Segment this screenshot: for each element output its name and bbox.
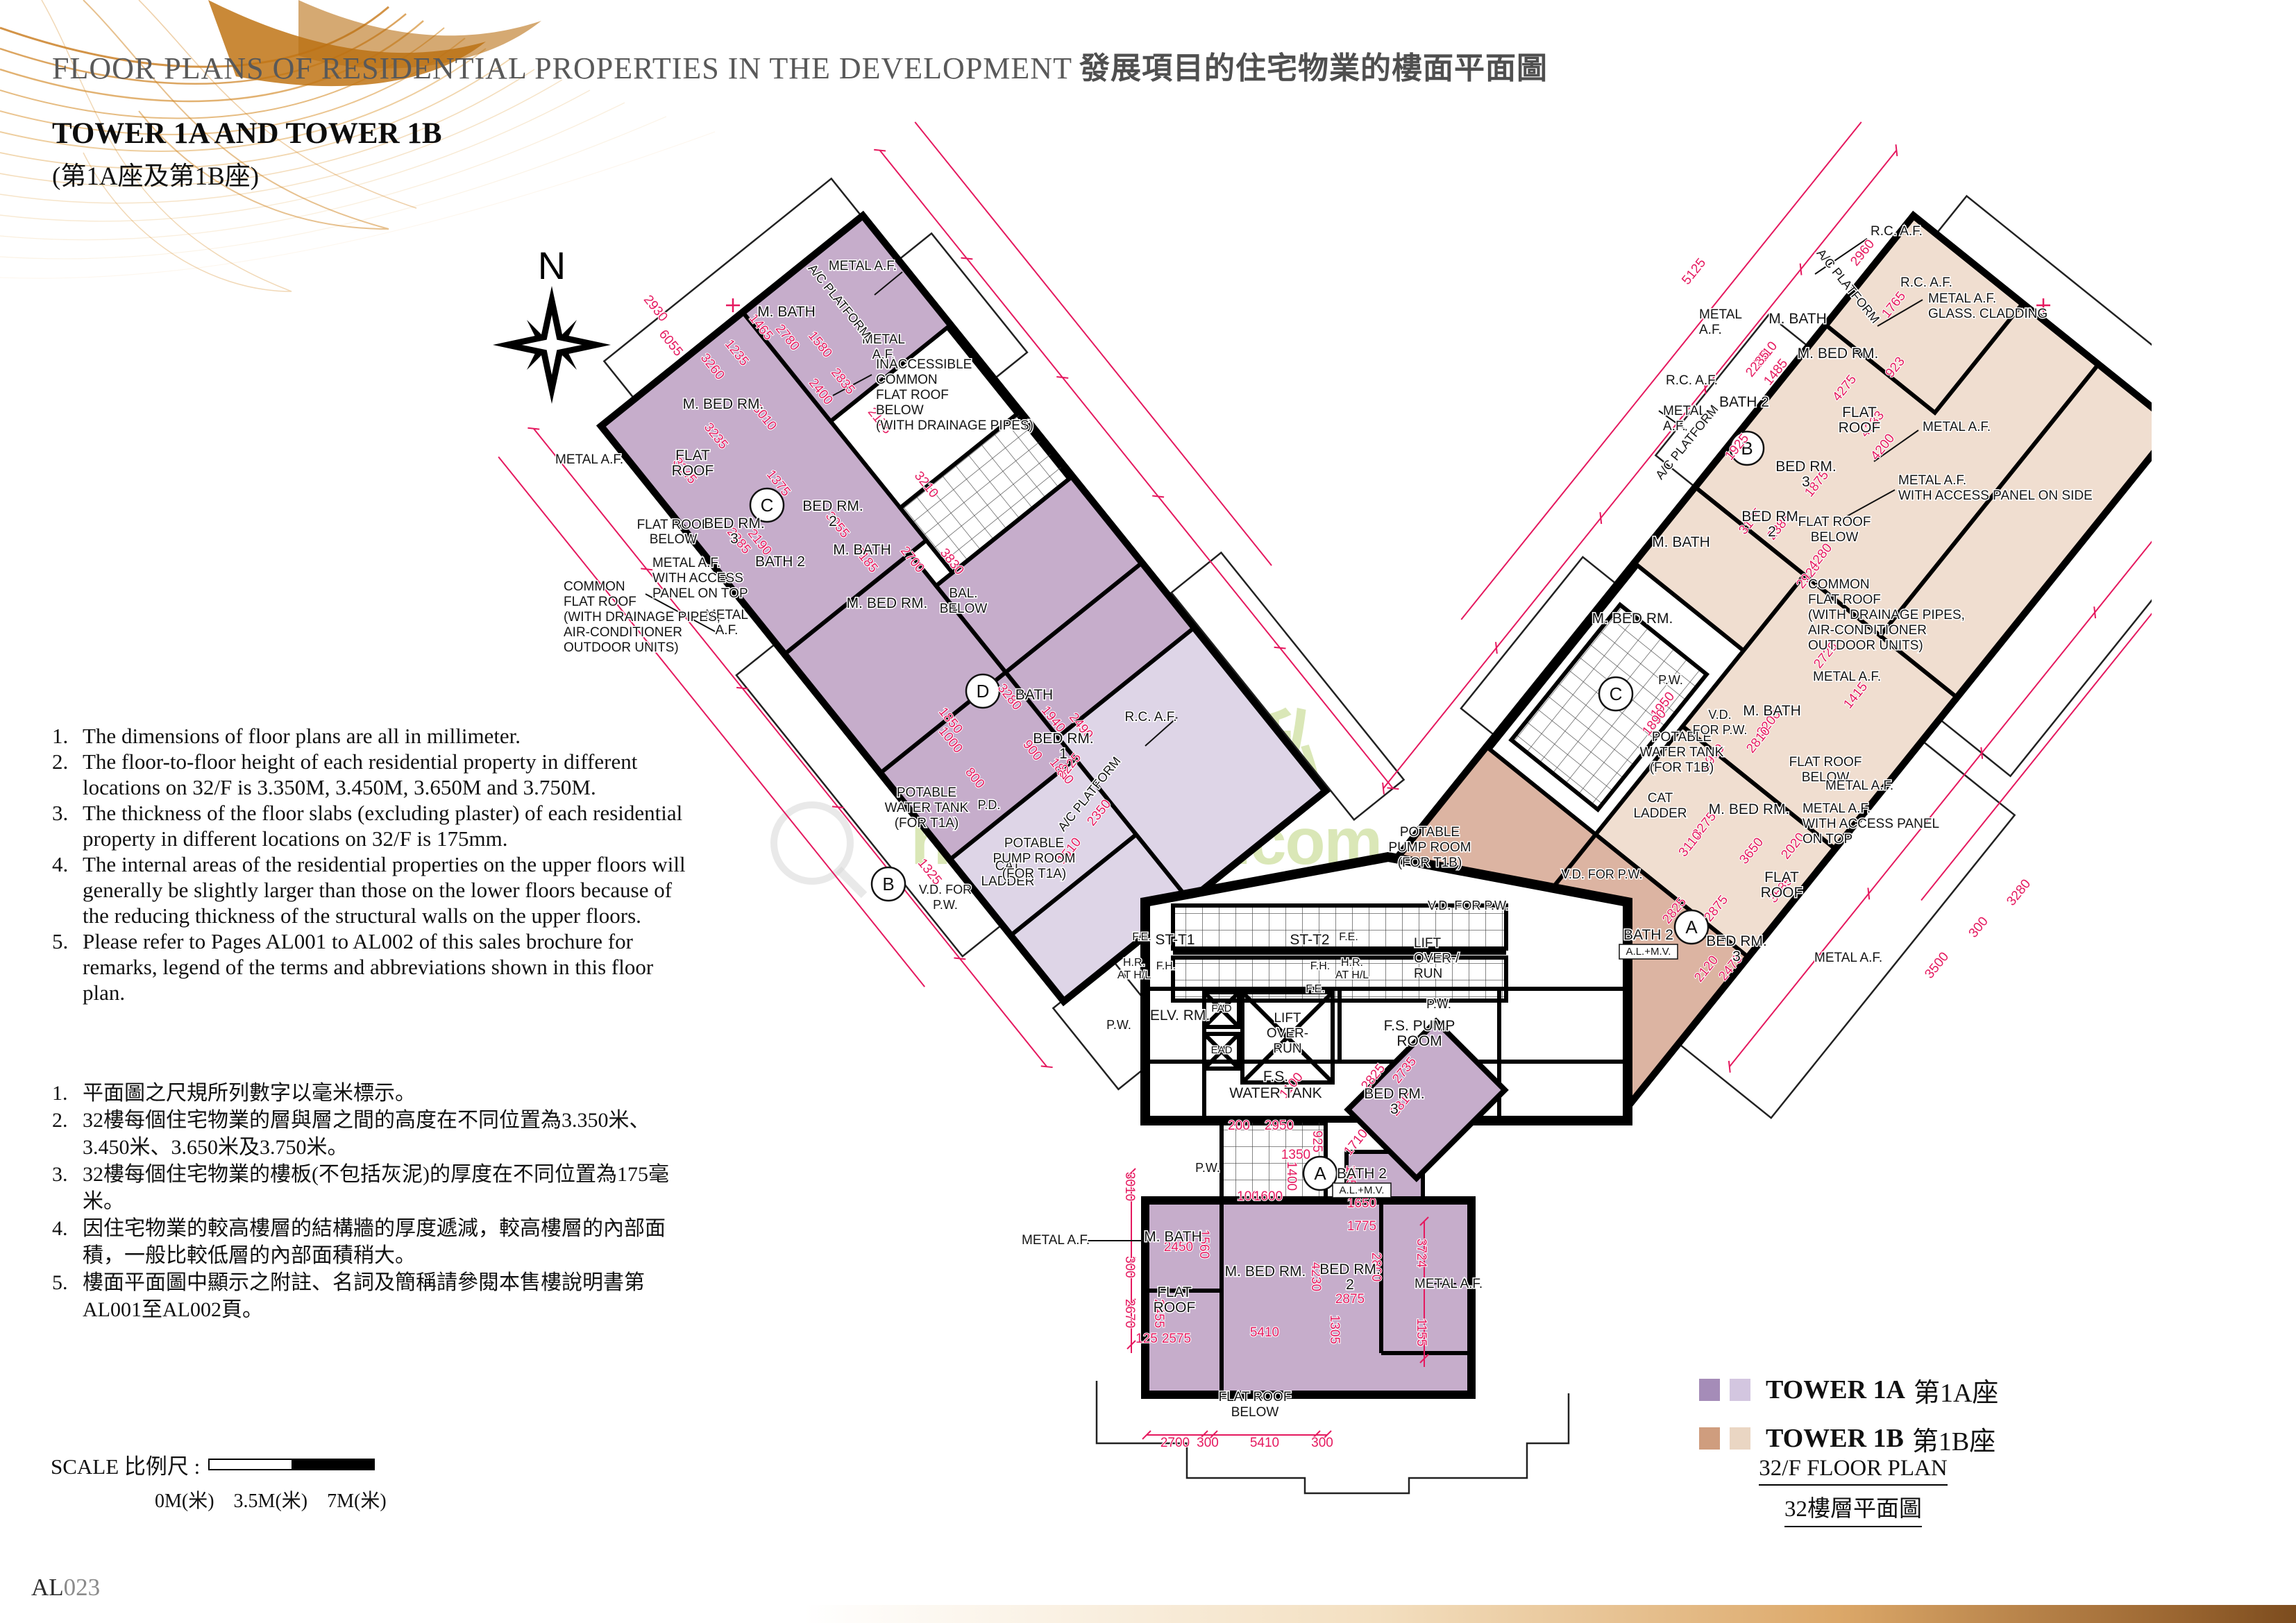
plan-label: AIR-CONDITIONER: [564, 625, 682, 640]
dimension-label: 2575: [1162, 1332, 1191, 1346]
dimension-label: 2700: [1160, 1436, 1190, 1450]
plan-label: METAL A.F.: [1928, 291, 1996, 306]
dimension-label: 6055: [656, 328, 686, 359]
plan-label: PUMP ROOM: [993, 851, 1076, 866]
svg-text:A: A: [1314, 1163, 1326, 1184]
plan-label: BATH: [1015, 687, 1053, 703]
plan-label: V.D. FOR P.W.: [1561, 867, 1642, 881]
plan-label: BELOW: [940, 602, 988, 616]
page-title-en: FLOOR PLANS OF RESIDENTIAL PROPERTIES IN…: [52, 51, 1072, 85]
plan-label: OVER-/: [1414, 951, 1460, 966]
plan-label: METAL A.F.: [1803, 801, 1871, 816]
plan-label: FLAT ROOF: [637, 518, 710, 532]
dimension-label: 1350: [1281, 1148, 1310, 1162]
legend-tower1a-zh: 第1A座: [1914, 1371, 1998, 1409]
plan-label: V.D.: [1708, 708, 1731, 722]
floor-plan-title: 32/F FLOOR PLAN 32樓層平面圖: [1735, 1456, 1971, 1527]
plan-label: FAD: [1211, 1003, 1231, 1014]
plan-label: RUN: [1414, 967, 1442, 981]
dimension-label: 1650: [1347, 1196, 1376, 1211]
plan-label: AT H/L: [1335, 969, 1369, 981]
plan-label: METAL A.F.: [1415, 1277, 1483, 1291]
plan-label: FLAT ROOF: [876, 388, 949, 402]
plan-label: BATH 2: [1337, 1166, 1387, 1182]
plan-label: LIFT: [1414, 936, 1441, 951]
plan-label: METAL A.F.: [555, 452, 623, 467]
plan-label: WATER TANK: [1640, 745, 1724, 760]
plan-label: M. BATH: [1769, 311, 1827, 327]
plan-label: P.W.: [1426, 997, 1451, 1011]
scale-label: SCALE 比例尺 :: [51, 1449, 200, 1480]
plan-label: POTABLE: [897, 785, 956, 800]
plan-label: METAL A.F.: [1814, 951, 1882, 965]
plan-label: BED RM.: [1741, 509, 1803, 525]
plan-label: METAL A.F.: [1022, 1233, 1090, 1248]
plan-label: (FOR T1A): [895, 816, 959, 831]
plan-label: WITH ACCESS: [652, 571, 743, 586]
plan-label: BED RM.: [1319, 1261, 1381, 1277]
dimension-label: 1155: [1414, 1318, 1428, 1347]
plan-label: BED RM.: [704, 516, 765, 532]
plan-label: M. BED RM.: [1225, 1264, 1306, 1280]
dimension-label: 300: [1966, 915, 1991, 941]
plan-label: COMMON: [1808, 577, 1870, 592]
plan-label: R.C. A.F.: [1871, 224, 1923, 239]
plan-label: V.D. FOR P.W.: [1428, 899, 1509, 912]
tower1a-dark-swatch: [1699, 1379, 1720, 1401]
brochure-page: FLOOR PLANS OF RESIDENTIAL PROPERTIES IN…: [0, 0, 2296, 1623]
compass-north: N: [493, 244, 611, 404]
plan-label: 2: [829, 513, 837, 529]
plan-label: METAL: [1699, 307, 1742, 322]
plan-label: ST-T1: [1155, 932, 1195, 948]
plan-label: P.W.: [1658, 673, 1683, 687]
plan-label: R.C. A.F.: [1666, 373, 1718, 388]
floor-plan-title-en: 32/F FLOOR PLAN: [1759, 1456, 1947, 1486]
plan-label: P.W.: [1106, 1018, 1131, 1032]
plan-label: BELOW: [876, 403, 924, 418]
dimension-label: 1305: [1327, 1315, 1342, 1344]
plan-label: WATER TANK: [885, 801, 969, 815]
plan-label: WATER TANK: [1229, 1085, 1322, 1101]
plan-label: A.L.+M.V.: [1626, 946, 1671, 958]
dimension-label: 125: [1136, 1332, 1158, 1346]
plan-label: CAT: [1648, 791, 1673, 806]
plan-label: H.R.: [1123, 957, 1145, 969]
plan-label: M. BATH: [1652, 534, 1710, 550]
scale-bar: [208, 1459, 375, 1470]
plan-label: 3: [1732, 949, 1741, 965]
plan-label: ROOF: [1839, 420, 1881, 436]
plan-label: F.S. PUMP: [1384, 1018, 1455, 1034]
plan-label: 3: [730, 531, 738, 547]
plan-label: BELOW: [1231, 1405, 1279, 1420]
legend-row-tower1b: TOWER 1B 第1B座: [1699, 1419, 1998, 1458]
plan-label: M. BED RM.: [1709, 801, 1790, 817]
plan-label: BELOW: [650, 532, 698, 547]
plan-label: FLAT ROOF: [1219, 1390, 1292, 1404]
dimension-label: 200: [1228, 1119, 1250, 1133]
plan-label: ROOF: [1154, 1300, 1196, 1316]
plan-label: 2: [1768, 524, 1776, 540]
dimension-label: 5125: [1679, 256, 1709, 288]
legend-tower1b-en: TOWER 1B: [1766, 1423, 1904, 1454]
svg-text:B: B: [882, 874, 894, 894]
plan-label: METAL A.F.: [829, 259, 897, 273]
plan-label: FLAT: [1157, 1284, 1192, 1300]
plan-label: P.W.: [1195, 1161, 1220, 1175]
plan-label: WITH ACCESS PANEL: [1803, 817, 1939, 831]
page-number: AL023: [31, 1574, 100, 1601]
scale-tick-1: 3.5M(米): [234, 1486, 308, 1513]
plan-label: PUMP ROOM: [1389, 840, 1471, 855]
plan-label: OUTDOOR UNITS): [564, 640, 679, 655]
plan-label: OVER-: [1267, 1026, 1308, 1041]
dimension-label: 5410: [1250, 1325, 1279, 1340]
plan-label: FLAT ROOF: [564, 595, 636, 609]
dimension-label: 300: [1197, 1436, 1219, 1450]
floor-plan: 好傢俬 hohomehk.com N: [486, 97, 2152, 1527]
dimension-label: 3280: [2004, 877, 2034, 909]
plan-label: GLASS. CLADDING: [1928, 307, 2048, 321]
plan-label: METAL A.F.: [652, 556, 720, 570]
unit-mark-B: B: [872, 867, 905, 901]
plan-label: ROOF: [1761, 885, 1803, 901]
dimension-label: 2930: [641, 293, 670, 325]
plan-label: COMMON: [564, 579, 625, 594]
plan-label: ST-T2: [1290, 932, 1329, 948]
plan-label: F.H.: [1310, 960, 1330, 972]
svg-text:D: D: [977, 681, 990, 702]
plan-label: ROOM: [1396, 1033, 1442, 1049]
plan-label: A.F.: [1663, 419, 1686, 434]
page-title-zh: 發展項目的住宅物業的樓面平面圖: [1079, 51, 1548, 85]
tower1b-light-swatch: [1730, 1427, 1750, 1450]
dimension-label: 1600: [1253, 1189, 1283, 1204]
tower-heading: TOWER 1A AND TOWER 1B (第1A座及第1B座): [52, 117, 442, 192]
tower1b-dark-swatch: [1699, 1427, 1720, 1450]
dimension-label: 3724: [1414, 1239, 1428, 1268]
plan-label: FLAT ROOF: [1798, 515, 1871, 529]
plan-label: F.S.: [1263, 1069, 1288, 1085]
plan-label: LADDER: [1633, 806, 1687, 821]
plan-label: FLAT ROOF: [1808, 593, 1881, 607]
dimension-label: 1400: [1284, 1162, 1299, 1191]
plan-label: M. BED RM.: [1798, 346, 1879, 362]
plan-label: BATH 2: [1719, 394, 1769, 410]
dimension-label: 5410: [1250, 1436, 1279, 1450]
legend-tower1a-en: TOWER 1A: [1766, 1375, 1905, 1405]
tower1a-light-swatch: [1730, 1379, 1750, 1401]
plan-label: R.C. A.F.: [1125, 710, 1177, 724]
plan-label: ON TOP: [1803, 832, 1852, 847]
unit-mark-C: C: [1599, 677, 1632, 711]
plan-label: (WITH DRAINAGE PIPES,: [1808, 608, 1965, 622]
tower-heading-en: TOWER 1A AND TOWER 1B: [52, 117, 442, 151]
plan-label: POTABLE: [1400, 825, 1460, 840]
plan-label: ROOF: [672, 463, 714, 479]
plan-label: F.E.: [1306, 983, 1325, 995]
plan-label: (FOR T1B): [1398, 856, 1462, 870]
plan-label: FLAT: [1764, 869, 1799, 885]
footer-gradient: [0, 1605, 2296, 1623]
plan-label: FLAT: [675, 448, 710, 464]
plan-label: METAL A.F.: [1825, 779, 1893, 793]
floor-plan-title-zh: 32樓層平面圖: [1784, 1490, 1922, 1527]
plan-label: AIR-CONDITIONER: [1808, 623, 1927, 638]
plan-label: AT H/L: [1117, 969, 1151, 981]
dimension-label: 1775: [1347, 1219, 1376, 1234]
plan-label: FLAT: [1842, 405, 1877, 420]
plan-label: BATH 2: [755, 554, 805, 570]
plan-label: METAL A.F.: [1813, 670, 1881, 684]
plan-label: POTABLE: [1004, 836, 1064, 851]
plan-label: INACCESSIBLE: [876, 357, 972, 372]
plan-label: BAL.: [949, 586, 977, 601]
plan-label: OUTDOOR UNITS): [1808, 638, 1923, 653]
dimension-label: 3010: [1122, 1172, 1137, 1201]
plan-label: LIFT: [1274, 1011, 1301, 1026]
svg-text:A: A: [1685, 917, 1698, 937]
scale-tick-0: 0M(米): [155, 1486, 214, 1513]
plan-label: M. BED RM.: [683, 396, 764, 412]
scale-block: SCALE 比例尺 : 0M(米) 3.5M(米) 7M(米): [51, 1449, 375, 1513]
plan-label: P.D.: [978, 798, 1001, 812]
tower-heading-zh: (第1A座及第1B座): [52, 155, 442, 192]
plan-label: 3: [1390, 1101, 1399, 1117]
plan-label: FOR P.W.: [1693, 723, 1748, 737]
plan-label: M. BED RM.: [1592, 611, 1673, 627]
plan-label: A.L.+M.V.: [1340, 1184, 1385, 1196]
plan-label: M. BATH: [1144, 1229, 1202, 1245]
dimension-label: 2875: [1335, 1292, 1365, 1307]
svg-text:C: C: [1610, 683, 1623, 704]
dimension-label: 300: [1311, 1436, 1333, 1450]
plan-label: ELV. RM.: [1150, 1008, 1210, 1023]
plan-label: WITH ACCESS PANEL ON SIDE: [1898, 488, 2093, 503]
svg-text:C: C: [761, 495, 774, 516]
plan-label: (FOR T1B): [1650, 760, 1714, 775]
plan-label: EAD: [1211, 1044, 1233, 1056]
plan-label: M. BATH: [833, 542, 891, 558]
legend-row-tower1a: TOWER 1A 第1A座: [1699, 1370, 1998, 1409]
plan-label: PANEL ON TOP: [652, 586, 748, 601]
plan-label: BED RM.: [802, 498, 863, 514]
plan-label: RUN: [1273, 1042, 1301, 1056]
plan-label: 3: [1802, 474, 1810, 490]
plan-label: METAL A.F.: [1898, 473, 1966, 488]
scale-tick-2: 7M(米): [327, 1486, 387, 1513]
plan-label: (WITH DRAINAGE PIPES): [876, 418, 1033, 433]
plan-label: BED RM.: [1775, 459, 1837, 475]
plan-label: BED RM.: [1364, 1086, 1425, 1102]
plan-label: 1: [1059, 746, 1067, 762]
plan-label: F.E.: [1132, 931, 1151, 943]
plan-label: METAL A.F.: [1923, 420, 1991, 434]
plan-label: BED RM.: [1706, 933, 1767, 949]
plan-label: R.C. A.F.: [1900, 275, 1952, 290]
unit-mark-D: D: [966, 674, 999, 708]
dimension-label: 300: [1122, 1256, 1137, 1278]
dimension-label: 925: [1310, 1130, 1324, 1153]
plan-label: BATH 2: [1623, 927, 1673, 943]
plan-label: FLAT ROOF: [1789, 755, 1862, 770]
plan-label: BELOW: [1811, 530, 1859, 545]
page-title: FLOOR PLANS OF RESIDENTIAL PROPERTIES IN…: [52, 43, 1548, 87]
plan-label: P.W.: [933, 898, 958, 912]
plan-label: A.F.: [716, 623, 738, 638]
plan-label: COMMON: [876, 373, 938, 387]
plan-label: 2: [1346, 1277, 1354, 1293]
compass-label: N: [538, 244, 566, 287]
plan-label: H.R.: [1341, 957, 1363, 969]
plan-label: (WITH DRAINAGE PIPES,: [564, 610, 720, 624]
plan-label: M. BATH: [1743, 703, 1801, 719]
plan-label: M. BED RM.: [847, 595, 928, 611]
plan-label: V.D. FOR: [919, 883, 972, 897]
plan-label: BED RM.: [1033, 731, 1094, 747]
plan-label: F.E.: [1339, 931, 1358, 943]
plan-label: F.H.: [1156, 960, 1176, 972]
plan-label: M. BATH: [757, 304, 816, 320]
plan-label: (FOR T1A): [1002, 867, 1067, 881]
plan-label: A.F.: [1699, 323, 1722, 337]
dimension-label: 3500: [1922, 950, 1952, 982]
legend-tower1b-zh: 第1B座: [1912, 1420, 1995, 1458]
legend: TOWER 1A 第1A座 TOWER 1B 第1B座: [1699, 1370, 1998, 1468]
dimension-label: 2950: [1265, 1119, 1294, 1133]
dimension-label: 2670: [1122, 1299, 1137, 1328]
